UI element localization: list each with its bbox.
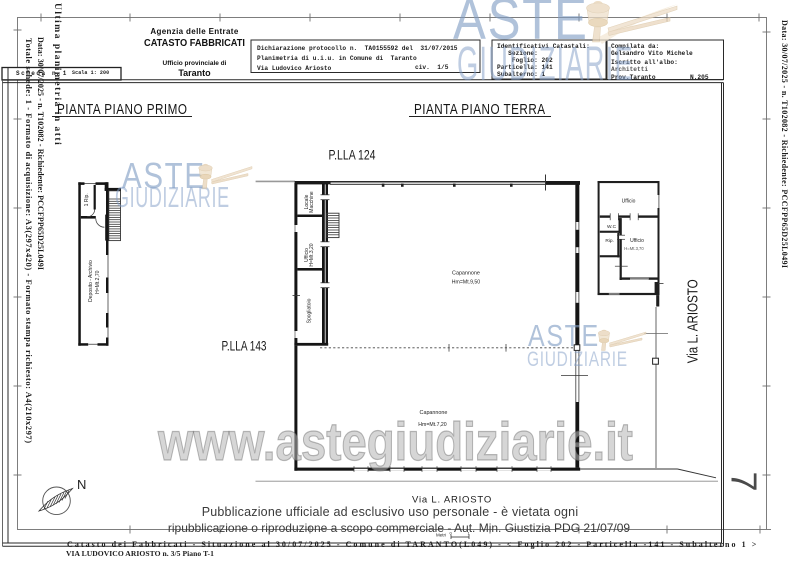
svg-text:P.LLA 124: P.LLA 124	[329, 148, 376, 163]
svg-text:P.LLA 143: P.LLA 143	[222, 339, 267, 354]
svg-text:7: 7	[724, 471, 765, 491]
svg-text:Via L. ARIOSTO: Via L. ARIOSTO	[685, 279, 702, 363]
svg-text:N: N	[77, 477, 86, 492]
